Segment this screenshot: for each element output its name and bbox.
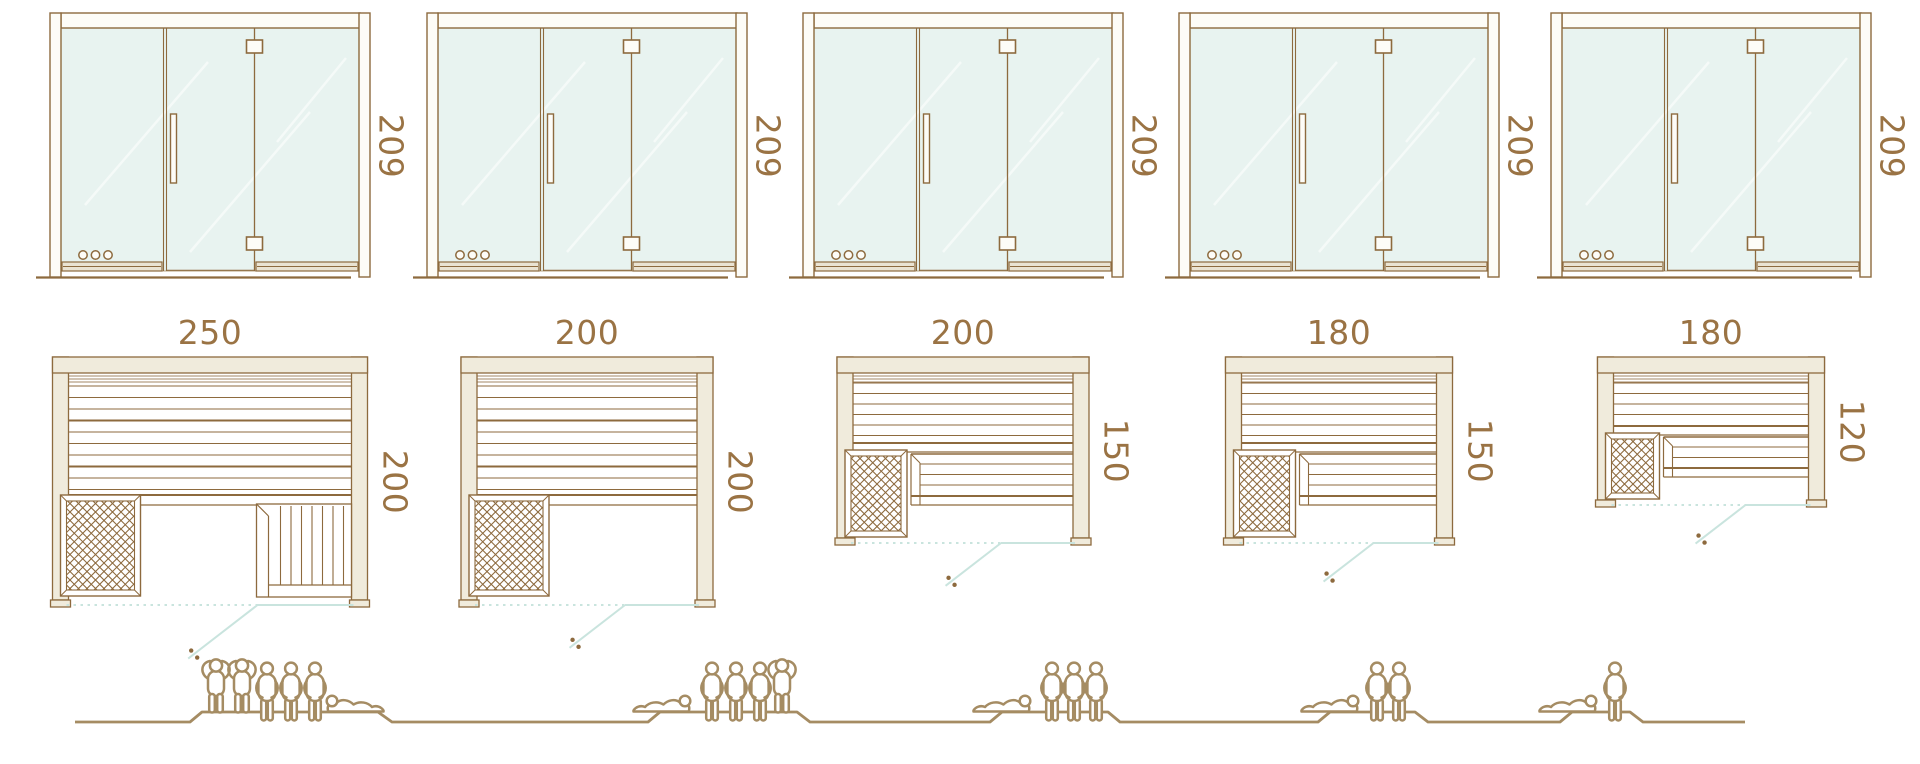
plan-depth-label: 150 [1460,419,1499,484]
door-elevation-drawing [1541,0,1901,286]
floor-plan-drawing [417,357,777,687]
door-elevation-drawing [1169,0,1529,286]
elevation-height-label: 209 [1125,114,1164,179]
floor-plan-drawing [1541,357,1901,587]
floor-plan-drawing [793,357,1153,625]
door-elevation-drawing [40,0,400,286]
door-elevation-drawing [417,0,777,286]
plan-depth-label: 150 [1097,419,1136,484]
plan-width-label: 250 [40,313,380,352]
plan-depth-label: 200 [721,450,760,515]
plan-width-label: 200 [793,313,1133,352]
capacity-figures-row [0,640,1920,764]
plan-width-label: 180 [1541,313,1881,352]
sauna-size-comparison-diagram: 209 250 200 209 200 200 209 200 150 209 … [0,0,1920,764]
elevation-height-label: 209 [372,114,411,179]
elevation-height-label: 209 [749,114,788,179]
floor-plan-drawing [40,357,400,687]
plan-width-label: 200 [417,313,757,352]
plan-width-label: 180 [1169,313,1509,352]
plan-depth-label: 200 [375,450,414,515]
floor-plan-drawing [1169,357,1529,625]
elevation-height-label: 209 [1873,114,1912,179]
plan-depth-label: 120 [1832,400,1871,465]
elevation-height-label: 209 [1501,114,1540,179]
door-elevation-drawing [793,0,1153,286]
